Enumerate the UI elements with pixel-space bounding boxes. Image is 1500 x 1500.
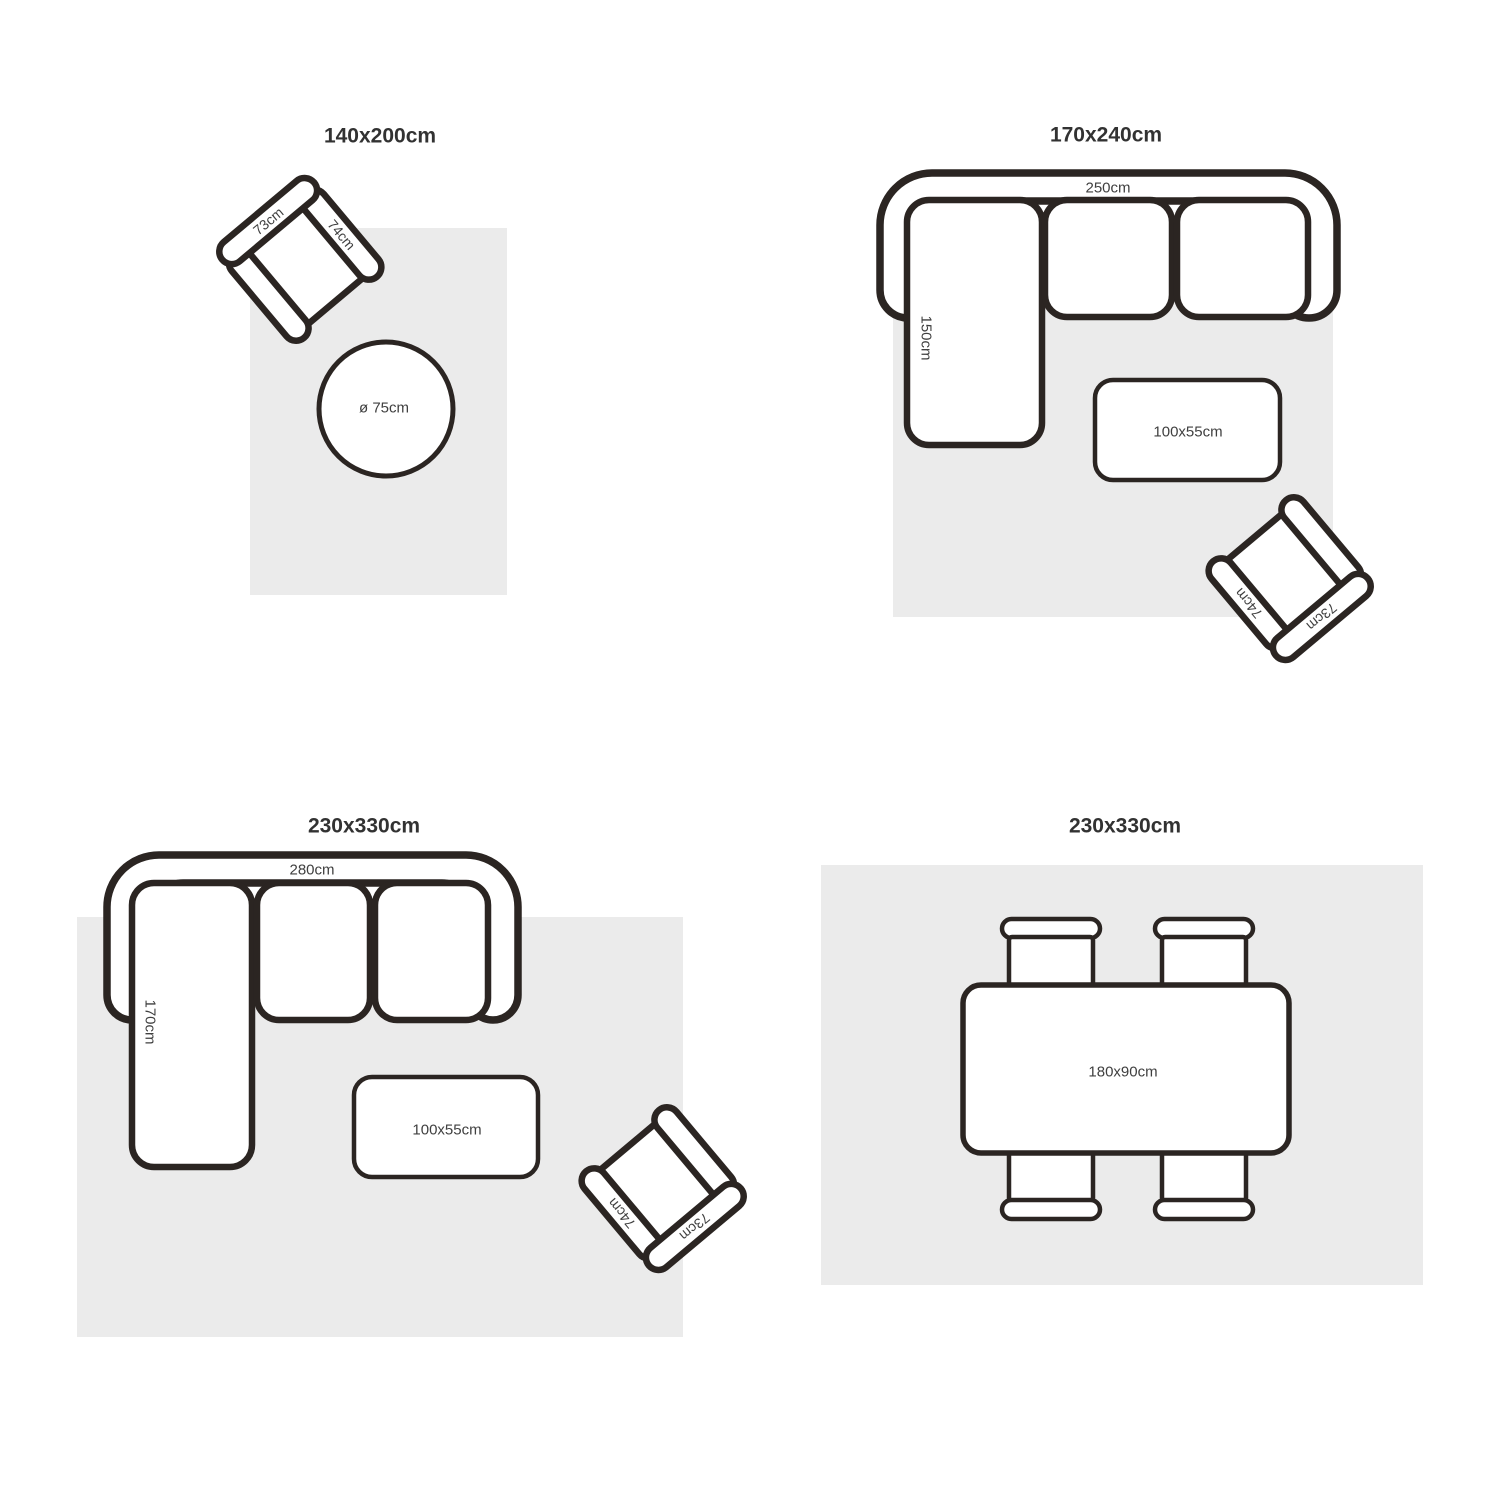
quadrant-230x330-dining: 230x330cm 180x90cm — [821, 815, 1423, 1286]
dining-chair — [1002, 1150, 1100, 1219]
rug-size-title: 140x200cm — [324, 125, 436, 148]
dining-chair — [1002, 919, 1100, 988]
sofa-seat-cushion — [375, 883, 488, 1020]
coffee-table-dimension: 100x55cm — [1153, 424, 1222, 441]
rug-size-title: 230x330cm — [308, 815, 420, 838]
sofa-width-dimension: 280cm — [289, 862, 334, 879]
round-side-table: ø 75cm — [319, 342, 453, 476]
chair-seat — [1162, 937, 1246, 988]
quadrant-140x200: 140x200cm 73cm 74cm ø 75cm — [214, 125, 507, 596]
quadrant-230x330-living: 230x330cm 280cm 170cm 100x55cm 73cm — [77, 815, 749, 1338]
chair-seat — [1162, 1150, 1246, 1201]
coffee-table: 100x55cm — [354, 1077, 538, 1177]
chair-seat — [1009, 1150, 1093, 1201]
dining-chair — [1155, 1150, 1253, 1219]
rug-size-guide: 140x200cm 73cm 74cm ø 75cm 170x240cm — [0, 0, 1500, 1500]
round-table-dimension: ø 75cm — [359, 400, 409, 417]
size-guide-svg: 140x200cm 73cm 74cm ø 75cm 170x240cm — [0, 0, 1500, 1500]
sofa-depth-dimension: 170cm — [142, 999, 159, 1044]
dining-table-dimension: 180x90cm — [1088, 1064, 1157, 1081]
chair-backrest — [1002, 1200, 1100, 1219]
dining-table: 180x90cm — [963, 985, 1289, 1153]
sofa-seat-cushion — [1045, 200, 1172, 317]
rug-size-title: 230x330cm — [1069, 815, 1181, 838]
sofa-width-dimension: 250cm — [1085, 180, 1130, 197]
sofa-seat-cushion — [1177, 200, 1308, 317]
sofa-seat-cushion — [257, 883, 370, 1020]
sofa-depth-dimension: 150cm — [918, 315, 935, 360]
quadrant-170x240: 170x240cm 250cm 150cm 100x55cm 73cm — [880, 124, 1376, 666]
dining-chair — [1155, 919, 1253, 988]
coffee-table-dimension: 100x55cm — [412, 1122, 481, 1139]
chair-seat — [1009, 937, 1093, 988]
chair-backrest — [1155, 1200, 1253, 1219]
rug-size-title: 170x240cm — [1050, 124, 1162, 147]
coffee-table: 100x55cm — [1095, 380, 1280, 480]
